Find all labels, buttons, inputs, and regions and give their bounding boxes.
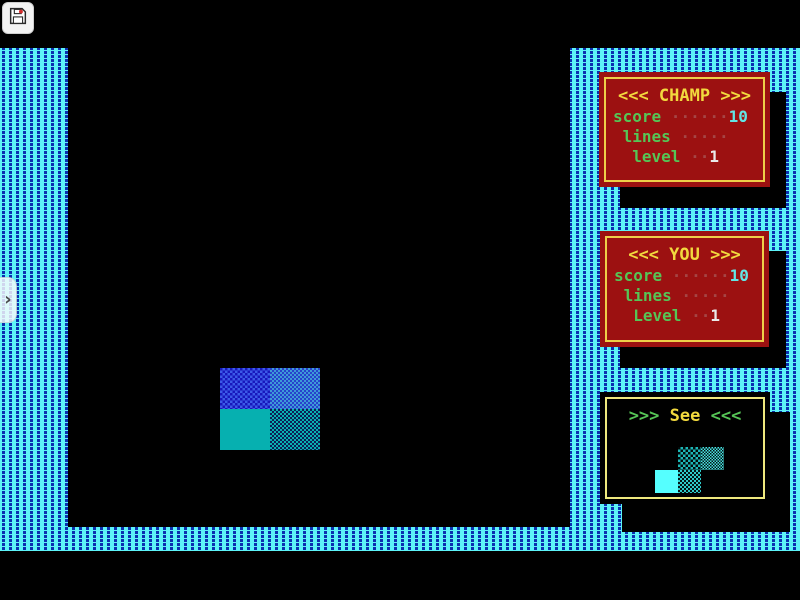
champ-level-row: level ··1 xyxy=(606,147,763,167)
next-piece-cell-bottom-mid xyxy=(678,470,701,493)
you-title: <<< YOU >>> xyxy=(607,245,762,266)
champ-panel-content: <<< CHAMP >>> score ······10 lines ·····… xyxy=(606,79,763,180)
next-piece-cell-bottom-left xyxy=(655,470,678,493)
game-screen: { "app": { "save_button": { "icon": "flo… xyxy=(0,0,800,600)
champ-score-dots: ······ xyxy=(661,107,728,126)
falling-piece-cell-bottom-left xyxy=(220,409,270,450)
falling-piece-cell-top-right xyxy=(270,368,320,409)
see-arrows-left: >>> xyxy=(629,406,670,426)
you-level-value: 1 xyxy=(710,306,720,325)
champ-level-dots: ·· xyxy=(680,147,709,166)
you-score-row: score ······10 xyxy=(607,266,762,286)
you-level-dots: ·· xyxy=(681,306,710,325)
see-title: >>> See <<< xyxy=(600,406,770,426)
chevron-right-icon: › xyxy=(4,291,11,309)
next-piece-cell-top-right xyxy=(701,447,724,470)
you-lines-label: lines xyxy=(614,286,672,305)
you-lines-row: lines ····· xyxy=(607,286,762,306)
you-panel-content: <<< YOU >>> score ······10 lines ····· L… xyxy=(607,238,762,340)
champ-level-value: 1 xyxy=(709,147,719,166)
champ-score-value: 10 xyxy=(729,107,748,126)
floppy-disk-icon xyxy=(7,5,29,31)
champ-title: <<< CHAMP >>> xyxy=(606,86,763,107)
you-panel: <<< YOU >>> score ······10 lines ····· L… xyxy=(600,231,769,347)
playfield xyxy=(68,48,570,527)
you-score-dots: ······ xyxy=(662,266,729,285)
champ-score-label: score xyxy=(613,107,661,126)
falling-piece-cell-bottom-right xyxy=(270,409,320,450)
champ-panel: <<< CHAMP >>> score ······10 lines ·····… xyxy=(599,72,770,187)
falling-piece-cell-top-left xyxy=(220,368,270,409)
next-piece-cell-top-left xyxy=(678,447,701,470)
champ-lines-dots: ····· xyxy=(671,127,729,146)
champ-level-label: level xyxy=(613,147,680,166)
you-level-label: Level xyxy=(614,306,681,325)
you-score-value: 10 xyxy=(730,266,749,285)
champ-lines-row: lines ····· xyxy=(606,127,763,147)
drawer-handle[interactable]: › xyxy=(0,277,17,323)
you-level-row: Level ··1 xyxy=(607,306,762,326)
champ-lines-label: lines xyxy=(613,127,671,146)
you-lines-dots: ····· xyxy=(672,286,730,305)
champ-score-row: score ······10 xyxy=(606,107,763,127)
see-title-word: See xyxy=(670,406,701,426)
see-arrows-right: <<< xyxy=(700,406,741,426)
you-score-label: score xyxy=(614,266,662,285)
save-button[interactable] xyxy=(2,2,34,34)
